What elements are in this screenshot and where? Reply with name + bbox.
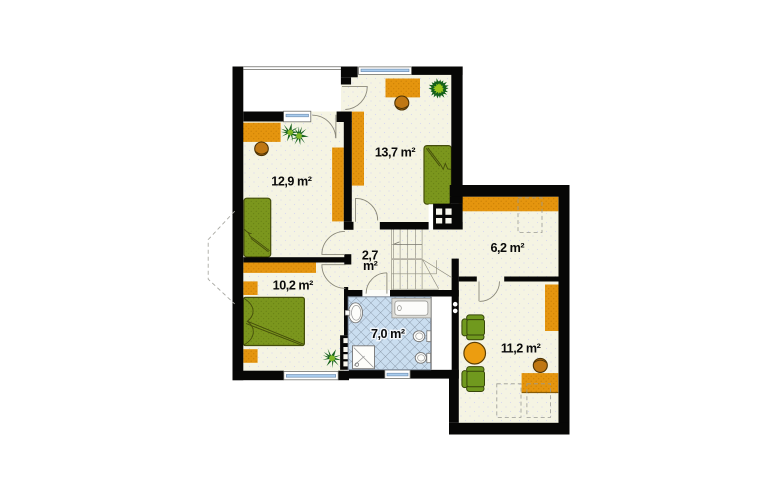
- svg-text:m²: m²: [363, 259, 378, 273]
- svg-text:6,2 m²: 6,2 m²: [490, 241, 524, 255]
- svg-text:11,2 m²: 11,2 m²: [501, 342, 541, 356]
- svg-text:12,9 m²: 12,9 m²: [271, 174, 312, 188]
- svg-text:13,7 m²: 13,7 m²: [375, 146, 416, 160]
- svg-text:10,2 m²: 10,2 m²: [273, 278, 314, 292]
- svg-text:7,0 m²: 7,0 m²: [371, 327, 405, 341]
